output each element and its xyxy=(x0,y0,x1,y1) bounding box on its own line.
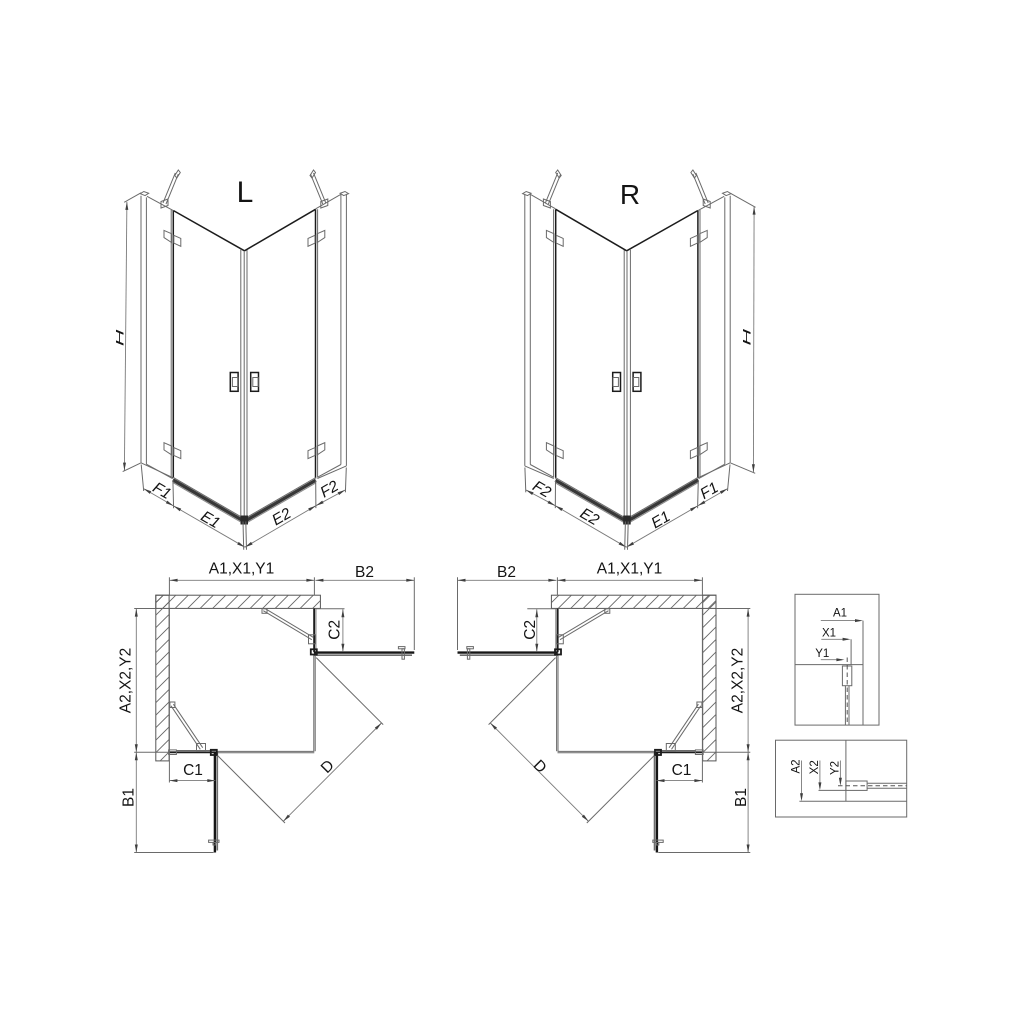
svg-text:C1: C1 xyxy=(672,762,692,779)
svg-text:A1,X1,Y1: A1,X1,Y1 xyxy=(209,561,275,578)
svg-text:C2: C2 xyxy=(522,620,539,640)
svg-text:A1: A1 xyxy=(833,608,847,620)
svg-text:X2: X2 xyxy=(809,760,821,774)
svg-text:H: H xyxy=(741,329,753,346)
svg-text:R: R xyxy=(620,179,640,210)
svg-text:B2: B2 xyxy=(355,564,374,581)
svg-text:H: H xyxy=(114,330,126,347)
svg-text:B2: B2 xyxy=(497,564,516,581)
svg-text:A2,X2,Y2: A2,X2,Y2 xyxy=(730,648,747,714)
svg-text:A2: A2 xyxy=(791,759,803,773)
svg-text:A2,X2,Y2: A2,X2,Y2 xyxy=(117,648,134,714)
svg-text:L: L xyxy=(237,176,254,209)
svg-text:A1,X1,Y1: A1,X1,Y1 xyxy=(597,561,663,578)
svg-text:Y2: Y2 xyxy=(830,761,842,775)
svg-text:Y1: Y1 xyxy=(815,648,829,660)
svg-text:C2: C2 xyxy=(327,620,344,640)
svg-text:C1: C1 xyxy=(183,762,203,779)
svg-text:B1: B1 xyxy=(733,788,750,807)
svg-text:X1: X1 xyxy=(822,628,836,640)
svg-text:B1: B1 xyxy=(121,788,138,807)
